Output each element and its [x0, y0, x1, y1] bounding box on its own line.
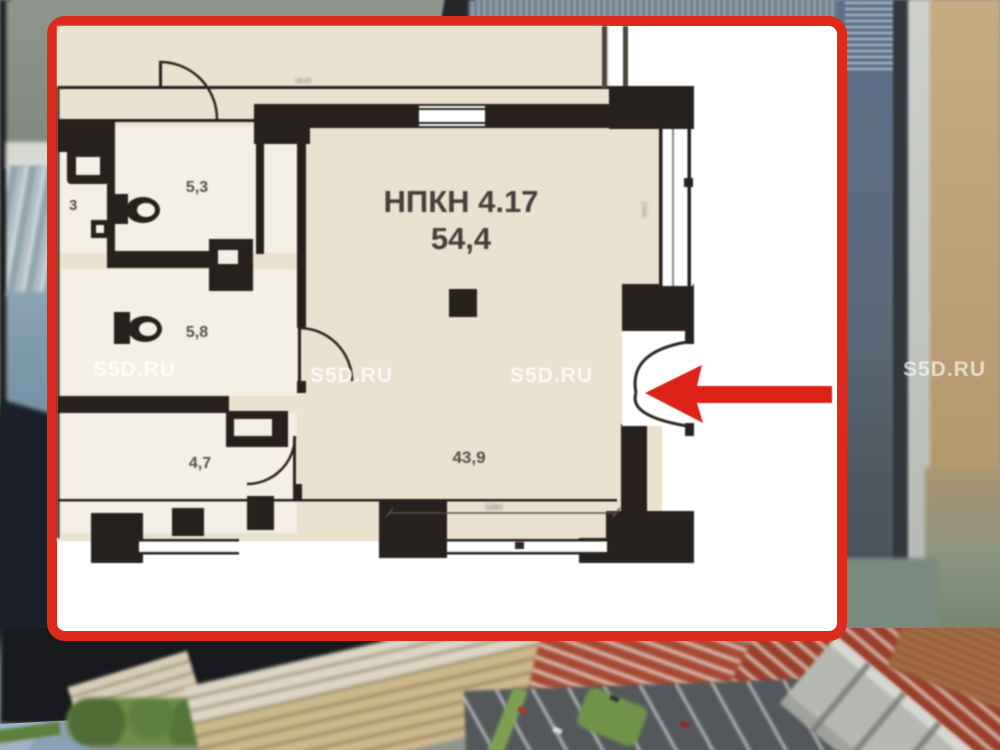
dimension-smudge-top: 3640 [295, 76, 312, 85]
red-arrow-annotation [615, 345, 845, 435]
watermark: S5D.RU [93, 358, 176, 382]
red-arrow-icon [615, 345, 845, 435]
toilet-tank-2 [114, 312, 130, 344]
dimension-smudge-bottom: 5980 [485, 503, 503, 512]
aerial-render-scene [0, 628, 1000, 750]
watermark: S5D.RU [310, 364, 393, 388]
main-room-area-label: 43,9 [452, 448, 485, 467]
room-label-1: 5,3 [186, 179, 208, 196]
right-lower-blur [833, 558, 938, 638]
floor-plan-highlight-box: НПКН 4.17 54,4 5,3 5,8 4,7 43,9 3 3640 5… [47, 16, 847, 641]
watermark: S5D.RU [903, 358, 986, 382]
watermark: S5D.RU [510, 364, 593, 388]
dimension-smudge-right: 2980 [640, 201, 649, 218]
shaft-core [218, 250, 238, 264]
tan-wall-right [930, 0, 1000, 485]
fixture-core [76, 157, 100, 175]
unit-area-label: 54,4 [431, 221, 492, 256]
unit-label: НПКН 4.17 [384, 184, 539, 219]
room-label-3: 4,7 [189, 455, 211, 472]
plan-field [57, 26, 662, 541]
floor-plan: НПКН 4.17 54,4 5,3 5,8 4,7 43,9 3 3640 5… [57, 26, 837, 631]
wall-core [234, 419, 272, 436]
room-label-2: 5,8 [186, 324, 208, 341]
toilet-tank-1 [114, 194, 128, 224]
partial-room-label: 3 [69, 197, 77, 214]
screenshot-root: НПКН 4.17 54,4 5,3 5,8 4,7 43,9 3 3640 5… [0, 0, 1000, 750]
